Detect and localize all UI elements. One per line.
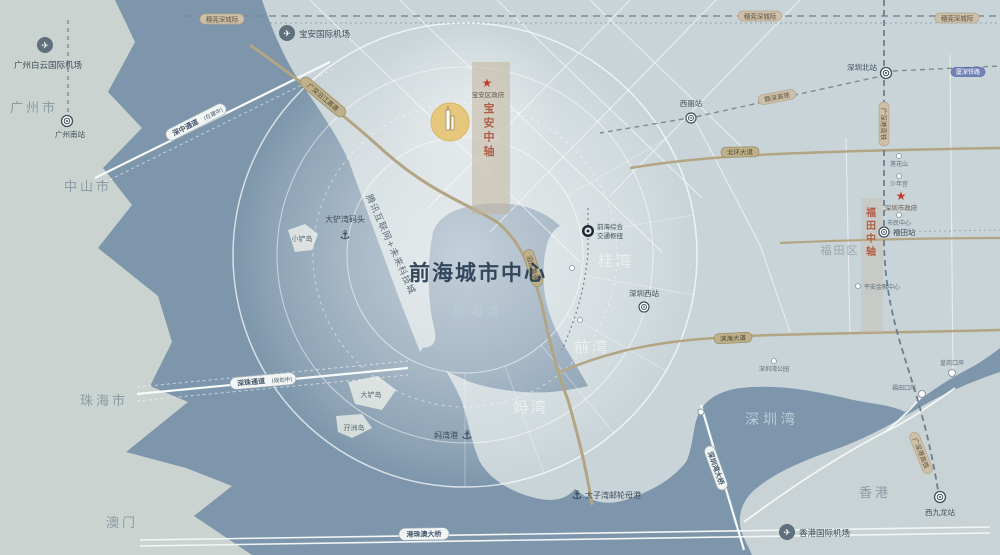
- hk-airport-label: 香港国际机场: [799, 528, 850, 539]
- zhuhai-label: 珠海市: [80, 393, 128, 409]
- train-station-icon: [62, 116, 73, 127]
- sz-gov-label: 深圳市政府: [885, 203, 918, 212]
- civic-center-label: 市民中心: [887, 219, 911, 227]
- xiashen-rail-label: 厦深铁路: [951, 68, 985, 77]
- hongkong-label: 香港: [859, 486, 891, 501]
- prince-bay-label: 太子湾邮轮母港: [585, 490, 641, 500]
- star-icon: ★: [482, 76, 493, 90]
- checkpoint-icon: [949, 370, 956, 377]
- macau-label: 澳门: [106, 515, 138, 531]
- train-station-icon: [639, 302, 649, 312]
- mawan-port-label: 妈湾港: [434, 430, 458, 440]
- futian-district-label: 福田区: [821, 243, 860, 257]
- pingan-label: 平安金融中心: [864, 283, 900, 291]
- qianhai-hub-label-1: 前海综合: [597, 222, 624, 231]
- xiaochan-label: 小铲岛: [292, 234, 313, 243]
- suiwanshen-label-2: 穗莞深城际: [738, 11, 782, 21]
- suiwanshen-txt-1: 穗莞深城际: [206, 15, 239, 24]
- huanggang-port-label: 皇岗口岸: [940, 359, 964, 367]
- hzm-bridge-label: 港珠澳大桥: [399, 528, 449, 541]
- map-title: 前海城市中心: [409, 261, 547, 285]
- metro-icon: [897, 154, 902, 159]
- anchor-icon: ⚓: [340, 228, 351, 242]
- beihuan-blvd-label: 北环大道: [721, 147, 759, 158]
- baoan-gov-label: 宝安区政府: [472, 90, 505, 99]
- mazhou-label: 孖洲岛: [344, 423, 365, 432]
- sz-north-label: 深圳北站: [847, 62, 877, 72]
- qianhai-bay-label: 前海湾: [452, 304, 503, 320]
- suiwanshen-label-1: 穗莞深城际: [200, 14, 244, 24]
- futian-port-label: 福田口岸: [892, 384, 916, 392]
- metro-icon: [772, 359, 777, 364]
- airplane-glyph: ✈: [41, 42, 49, 52]
- metro-icon: [578, 318, 583, 323]
- metro-icon: [897, 213, 902, 218]
- project-highlight: [431, 103, 469, 141]
- guiwan-label: 桂湾: [598, 252, 634, 270]
- xili-label: 西丽站: [680, 98, 703, 108]
- anchor-icon: ⚓: [462, 428, 473, 442]
- dachan-label: 大铲岛: [361, 390, 382, 399]
- lianhuashan-label: 莲花山: [890, 160, 908, 168]
- hub-icon: [582, 225, 594, 237]
- suiwanshen-txt-2: 穗莞深城际: [744, 12, 777, 21]
- gsg-hsr-label-1: 广深港高铁: [879, 102, 889, 146]
- suiwanshen-txt-3: 穗莞深城际: [941, 14, 974, 23]
- qianhai-hub-label-2: 交通枢纽: [597, 231, 624, 240]
- dachanwan-label: 大铲湾码头: [325, 214, 365, 224]
- gsg-hsr-txt-1: 广深港高铁: [880, 108, 889, 141]
- futian-station: 福田站: [879, 227, 916, 237]
- train-station-icon: [686, 113, 696, 123]
- hzmb-label: 港珠澳大桥: [406, 529, 442, 539]
- metro-icon: [856, 284, 861, 289]
- airplane-glyph: ✈: [783, 529, 791, 539]
- anchor-icon: ⚓: [572, 488, 583, 502]
- gz-south-label: 广州南站: [55, 129, 85, 139]
- metro-icon: [570, 266, 575, 271]
- train-station-icon: [879, 227, 889, 237]
- sz-west-label: 深圳西站: [629, 288, 659, 298]
- baiyun-airport-label: 广州白云国际机场: [14, 60, 82, 71]
- binhai-txt: 滨海大道: [720, 333, 747, 343]
- train-station-icon: [935, 492, 946, 503]
- guangzhou-label: 广州市: [10, 100, 58, 116]
- futian-station-label: 福田站: [893, 227, 916, 237]
- baoan-airport-label: 宝安国际机场: [299, 29, 350, 40]
- star-icon: ★: [896, 189, 907, 203]
- zhongshan-label: 中山市: [64, 179, 112, 195]
- airplane-glyph: ✈: [283, 30, 291, 40]
- mawan-port: 妈湾港 ⚓: [434, 428, 472, 442]
- binhai-blvd-label: 滨海大道: [714, 332, 752, 344]
- kowloon-label: 西九龙站: [925, 507, 955, 517]
- qianhai-location-map: 深中通道 (在建中) 深珠通道 (规划中) 广深沿江高速 沿江高速 港珠澳大桥 …: [0, 0, 1000, 555]
- szbay-park-label: 深圳湾公园: [759, 365, 789, 373]
- checkpoint-icon: [919, 391, 926, 398]
- xiashen-txt: 厦深铁路: [956, 68, 980, 76]
- qianwan-label: 前湾: [574, 338, 610, 356]
- beihuan-txt: 北环大道: [727, 147, 754, 156]
- suiwanshen-label-3: 穗莞深城际: [935, 13, 979, 23]
- metro-icon: [897, 174, 902, 179]
- map-canvas: 深中通道 (在建中) 深珠通道 (规划中) 广深沿江高速 沿江高速 港珠澳大桥 …: [0, 0, 1000, 555]
- prince-bay-port: ⚓ 太子湾邮轮母港: [572, 488, 641, 502]
- mawan-label: 妈湾: [513, 398, 549, 416]
- children-palace-label: 少年宫: [890, 180, 908, 188]
- train-station-icon: [881, 68, 892, 79]
- shenzhen-bay-label: 深圳湾: [745, 411, 799, 428]
